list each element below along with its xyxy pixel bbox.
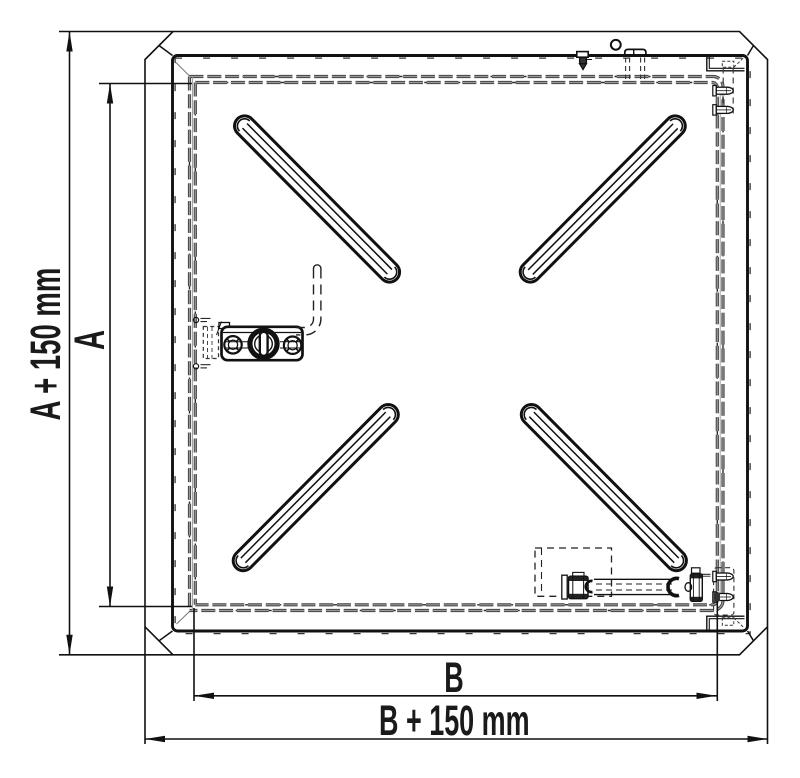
- svg-text:B: B: [444, 654, 463, 702]
- svg-text:A + 150 mm: A + 150 mm: [21, 268, 70, 421]
- svg-text:B + 150 mm: B + 150 mm: [379, 696, 530, 744]
- svg-text:A: A: [65, 330, 114, 350]
